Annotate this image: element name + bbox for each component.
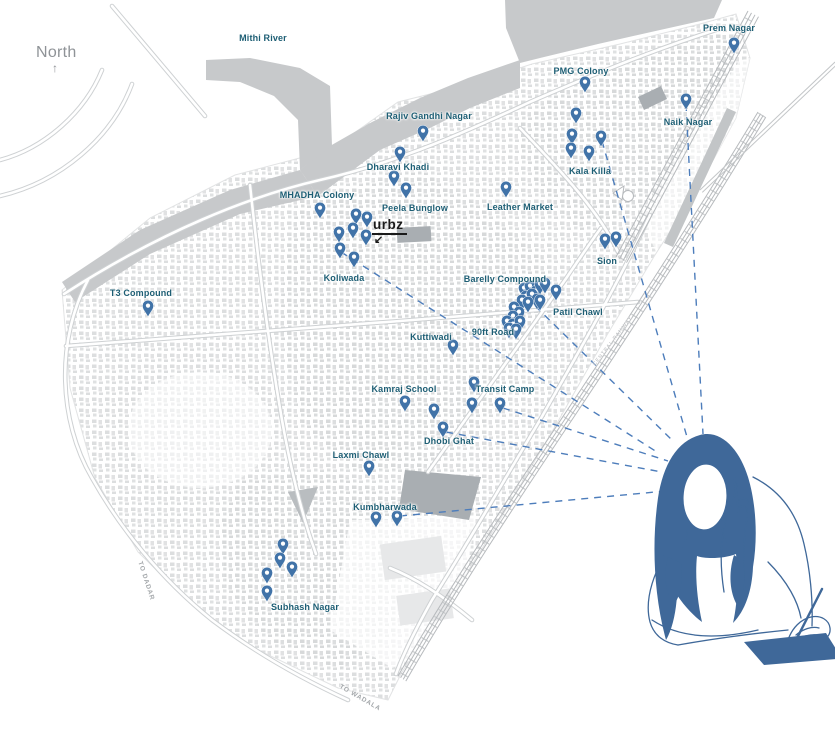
map-canvas: [0, 0, 835, 738]
compass: North ↑: [36, 44, 77, 73]
dharavi-map: Mithi RiverPrem NagarPMG ColonyNaik Naga…: [0, 0, 835, 738]
notebook-sheet: [744, 633, 835, 665]
urbz-logo-text: urbz: [372, 217, 407, 235]
logo-pointer-arrow-icon: ↙: [374, 236, 407, 245]
urbz-logo: urbz ↙: [372, 216, 407, 245]
map-base: [0, 0, 835, 700]
north-arrow-icon: ↑: [52, 63, 77, 73]
compass-label: North: [36, 44, 77, 62]
person-illustration: [648, 434, 835, 665]
